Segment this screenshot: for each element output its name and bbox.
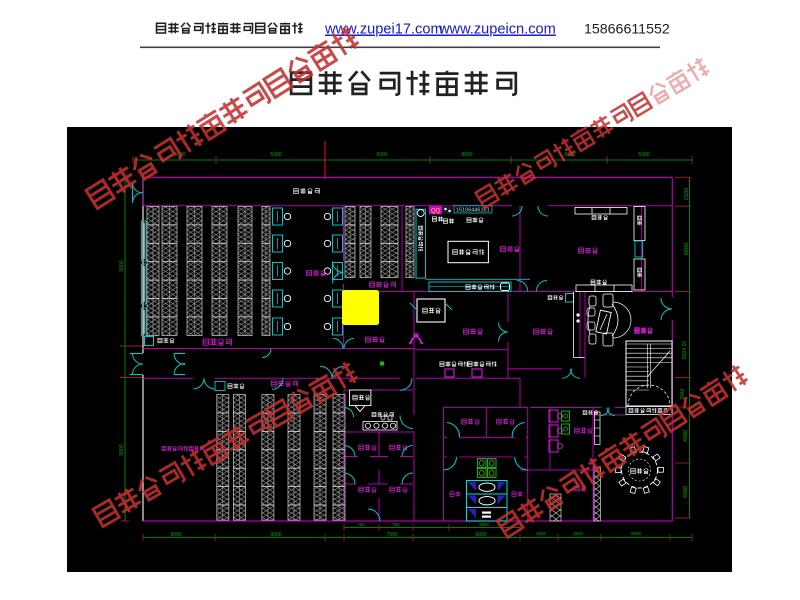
svg-text:5000: 5000: [170, 532, 181, 538]
svg-text:8024.16: 8024.16: [682, 341, 688, 359]
svg-text:2100: 2100: [684, 188, 690, 200]
svg-text:750: 750: [392, 522, 400, 527]
svg-text:750: 750: [357, 522, 365, 527]
svg-text:2500: 2500: [573, 531, 584, 536]
svg-text:4000: 4000: [683, 430, 689, 442]
svg-text:8000: 8000: [461, 152, 472, 158]
svg-text:9000: 9000: [119, 260, 125, 271]
svg-text:5000: 5000: [631, 531, 642, 536]
svg-text:6000: 6000: [475, 532, 486, 538]
svg-text:5000: 5000: [376, 152, 387, 158]
svg-text:5000: 5000: [270, 152, 281, 158]
svg-text:9000: 9000: [119, 444, 125, 455]
svg-text:15866611552: 15866611552: [584, 22, 670, 38]
svg-text:1500: 1500: [536, 531, 547, 536]
svg-text:www.zupeicn.com: www.zupeicn.com: [438, 22, 556, 38]
svg-text:4000: 4000: [683, 486, 689, 498]
svg-text:5000: 5000: [638, 152, 649, 158]
svg-text:7500: 7500: [386, 532, 397, 538]
svg-text:6000: 6000: [684, 243, 690, 255]
svg-text:9000: 9000: [270, 532, 281, 538]
svg-text:2850: 2850: [479, 522, 490, 527]
svg-text:www.zupei17.com: www.zupei17.com: [324, 22, 443, 38]
svg-text:QQ: QQ: [431, 209, 441, 215]
